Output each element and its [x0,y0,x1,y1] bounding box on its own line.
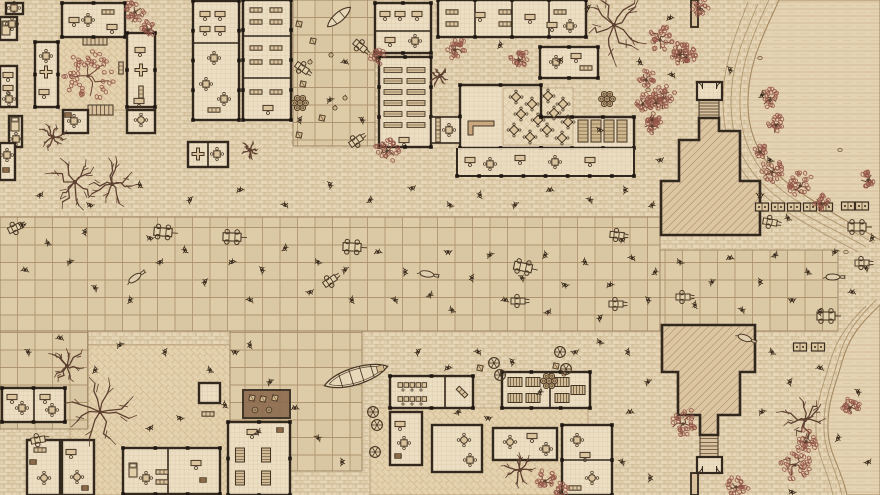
town-map-canvas[interactable] [0,0,880,495]
town-map [0,0,880,495]
